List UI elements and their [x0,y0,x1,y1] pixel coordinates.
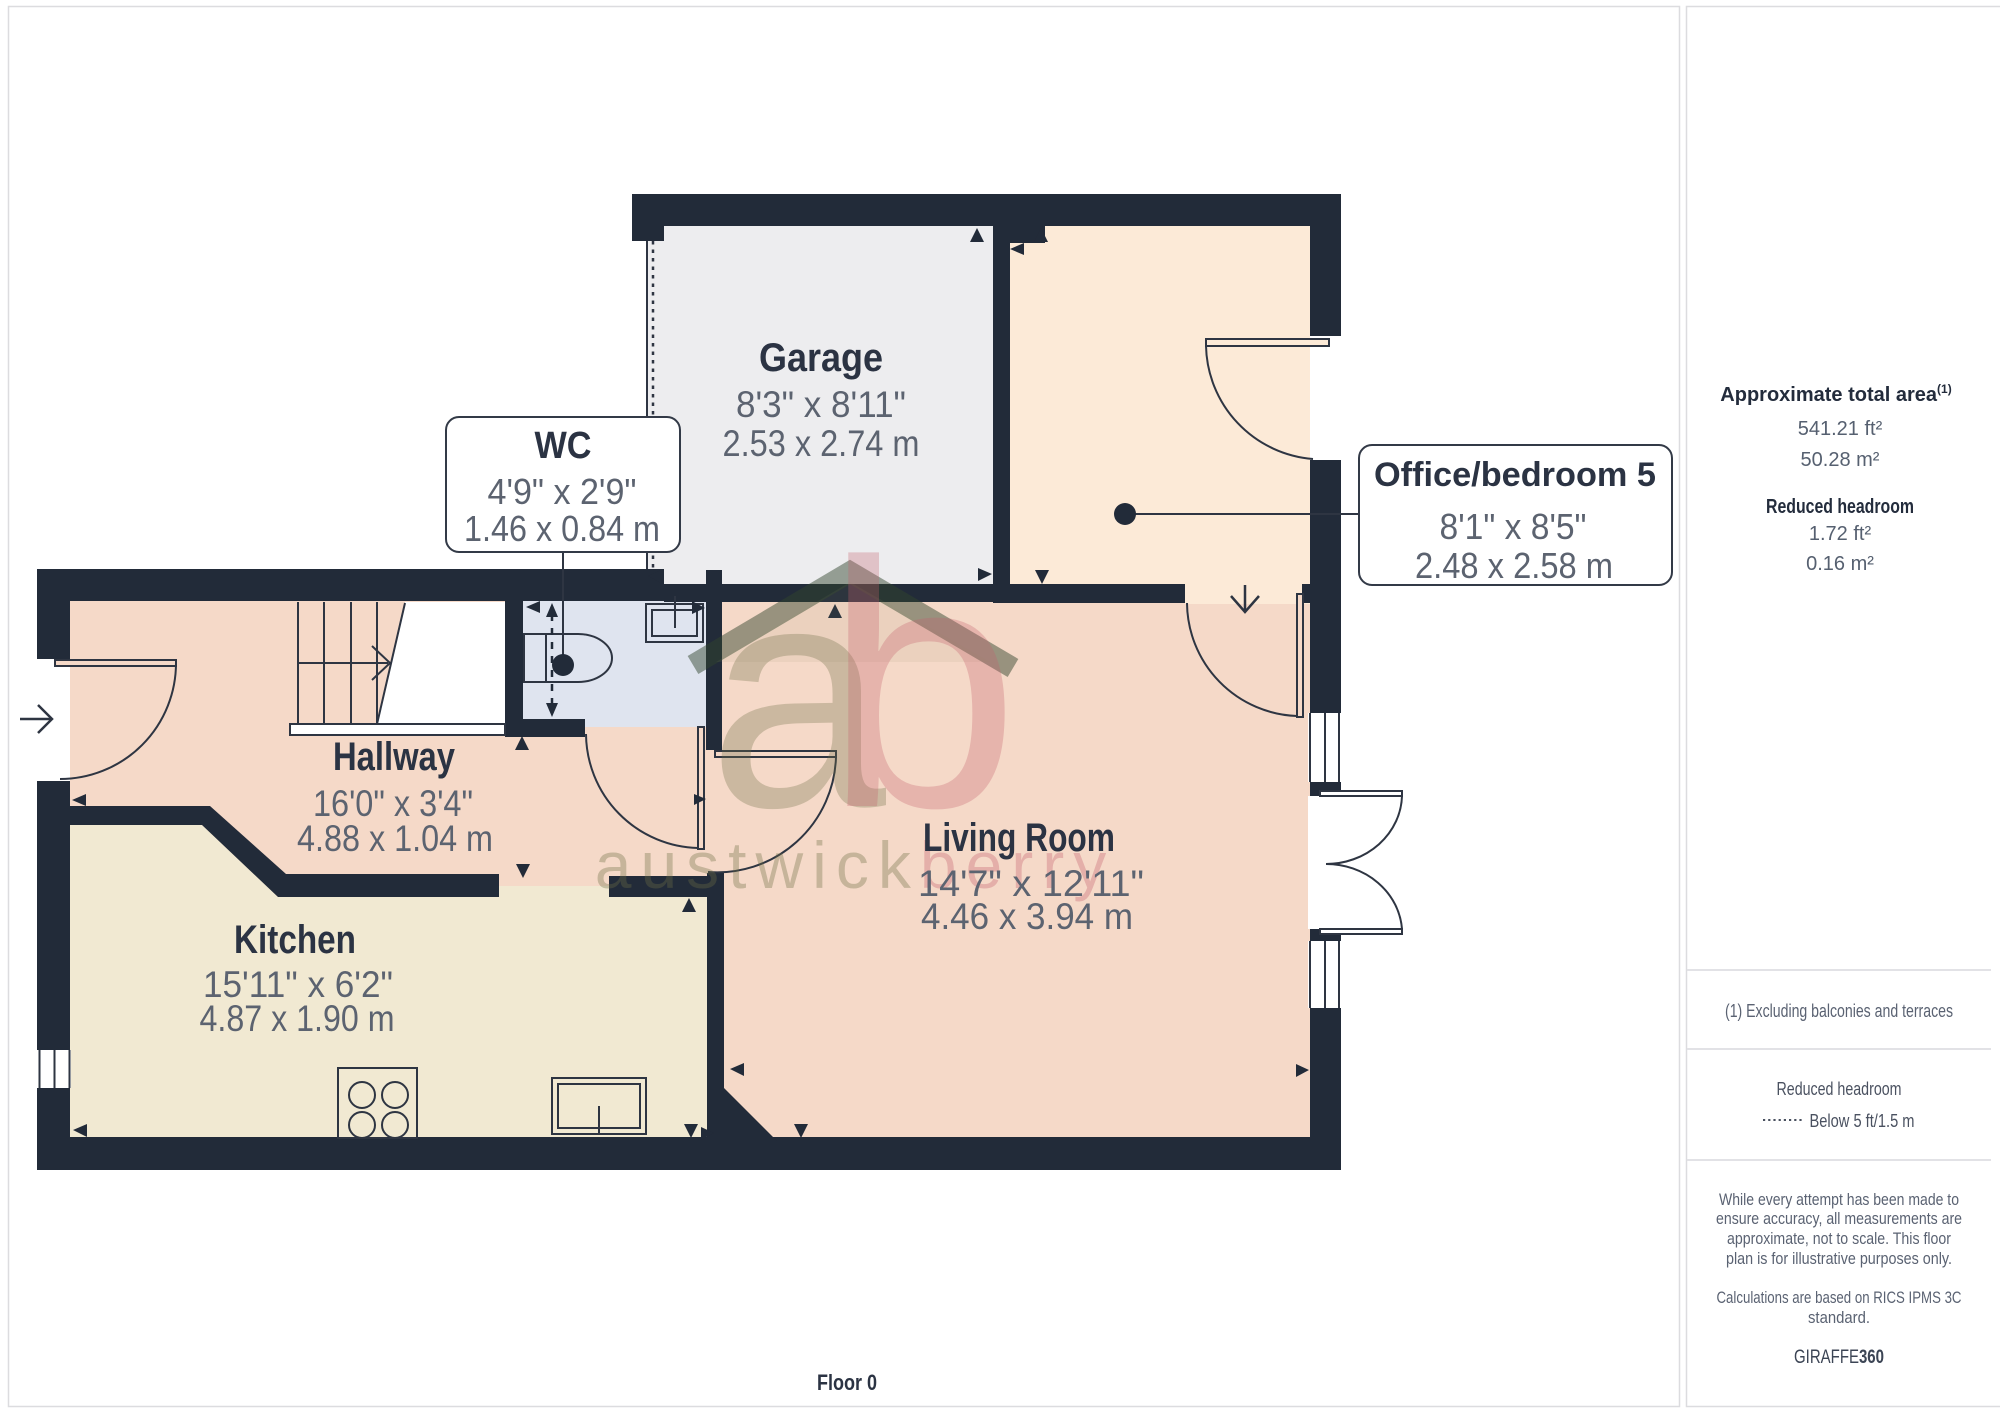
svg-text:approximate, not to scale. Thi: approximate, not to scale. This floor [1727,1229,1951,1248]
svg-text:(1) Excluding balconies and te: (1) Excluding balconies and terraces [1725,1001,1953,1021]
svg-text:Hallway: Hallway [333,735,456,779]
svg-text:Below 5 ft/1.5 m: Below 5 ft/1.5 m [1810,1111,1915,1131]
svg-text:1.46 x 0.84 m: 1.46 x 0.84 m [464,508,660,549]
svg-text:Approximate total area(1): Approximate total area(1) [1720,382,1951,406]
svg-text:While every attempt has been m: While every attempt has been made to [1719,1190,1959,1209]
svg-text:4'9" x 2'9": 4'9" x 2'9" [488,471,637,512]
svg-text:WC: WC [535,425,592,467]
svg-text:Reduced headroom: Reduced headroom [1766,496,1914,518]
svg-text:standard.: standard. [1808,1308,1870,1327]
svg-text:541.21 ft²: 541.21 ft² [1798,418,1883,440]
svg-text:Reduced headroom: Reduced headroom [1777,1079,1902,1099]
svg-text:Calculations are based on RICS: Calculations are based on RICS IPMS 3C [1717,1288,1962,1307]
svg-text:50.28 m²: 50.28 m² [1801,449,1880,471]
svg-text:2.53 x 2.74 m: 2.53 x 2.74 m [723,423,920,464]
svg-text:2.48 x 2.58 m: 2.48 x 2.58 m [1415,545,1613,586]
svg-text:4.87 x 1.90 m: 4.87 x 1.90 m [200,998,395,1039]
svg-text:plan is for illustrative purpo: plan is for illustrative purposes only. [1726,1249,1952,1268]
svg-text:ensure accuracy, all measureme: ensure accuracy, all measurements are [1716,1209,1962,1228]
svg-text:Living Room: Living Room [923,816,1115,860]
svg-text:Office/bedroom 5: Office/bedroom 5 [1374,456,1656,494]
svg-text:Garage: Garage [759,336,883,380]
svg-text:Kitchen: Kitchen [234,918,356,962]
svg-text:8'1" x 8'5": 8'1" x 8'5" [1440,506,1587,547]
svg-text:8'3" x 8'11": 8'3" x 8'11" [736,384,906,425]
svg-text:GIRAFFE360: GIRAFFE360 [1794,1347,1884,1368]
svg-text:4.88 x 1.04 m: 4.88 x 1.04 m [297,818,493,859]
svg-text:1.72 ft²: 1.72 ft² [1809,523,1872,545]
svg-text:Floor 0: Floor 0 [817,1370,877,1395]
svg-text:0.16 m²: 0.16 m² [1806,553,1874,575]
svg-text:4.46 x 3.94 m: 4.46 x 3.94 m [921,896,1133,937]
